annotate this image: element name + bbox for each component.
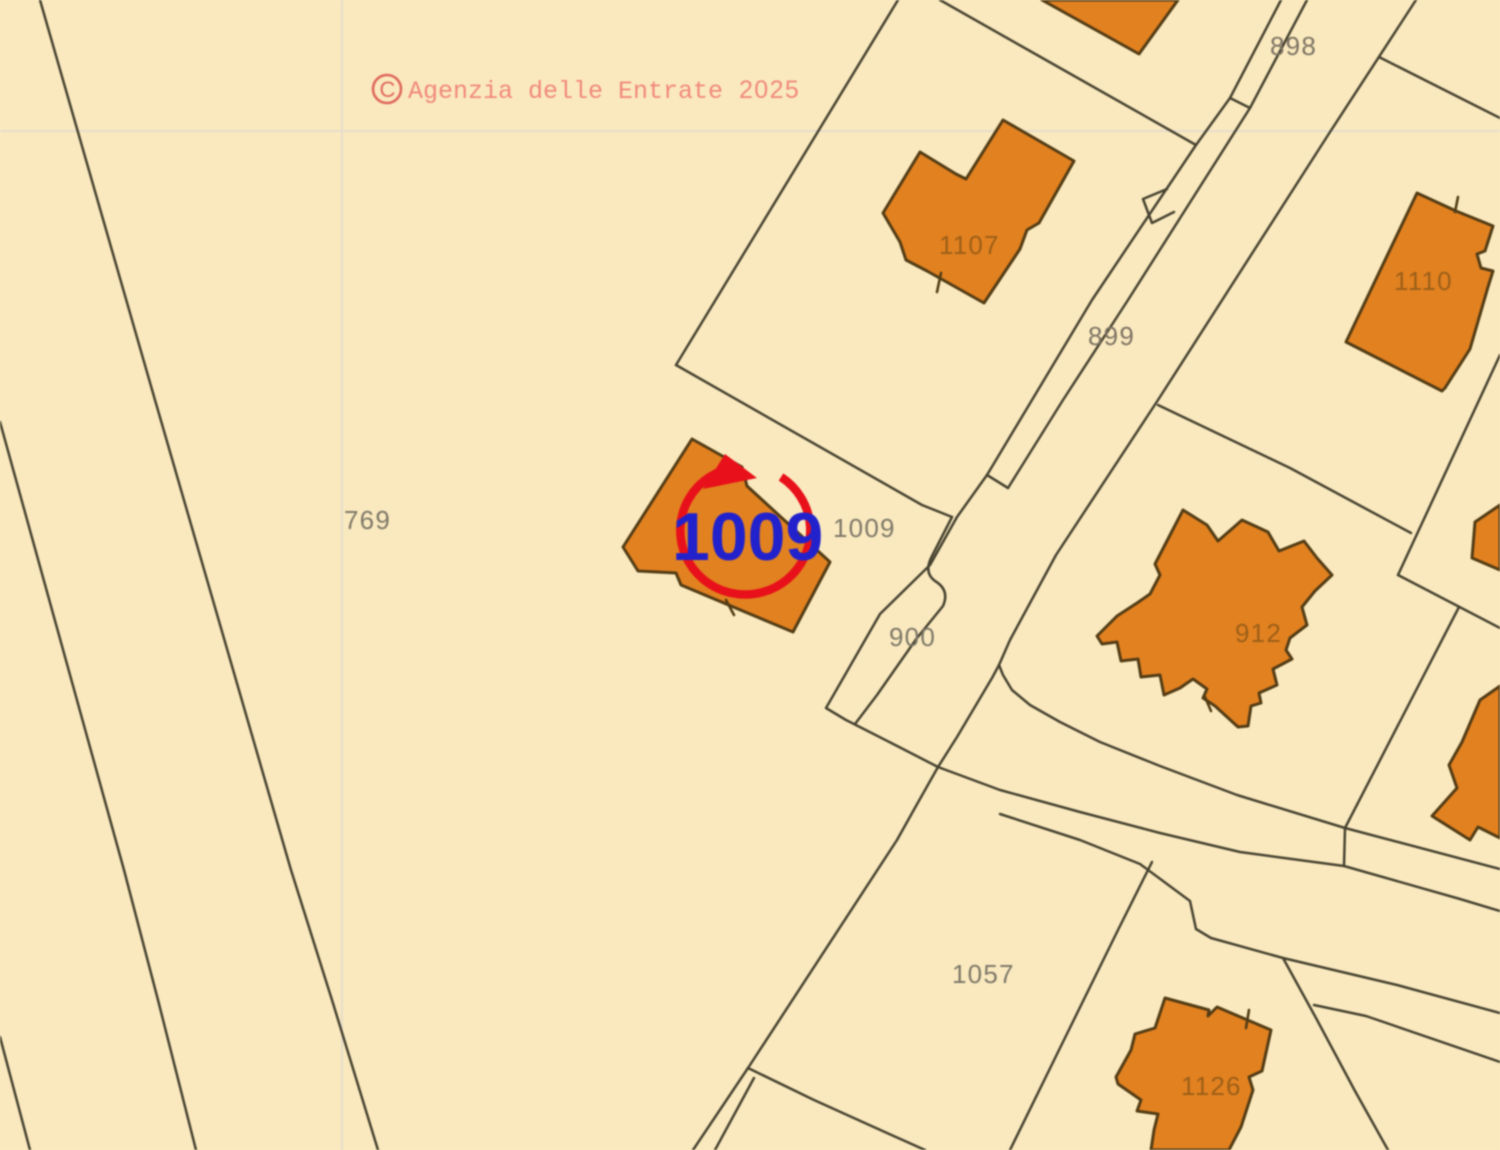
- svg-text:C: C: [380, 77, 396, 102]
- svg-text:769: 769: [344, 505, 391, 535]
- svg-text:1107: 1107: [939, 230, 1000, 260]
- svg-text:1110: 1110: [1394, 266, 1453, 296]
- svg-text:2025: 2025: [739, 76, 800, 104]
- svg-text:912: 912: [1235, 618, 1282, 648]
- svg-text:1009: 1009: [672, 499, 823, 575]
- svg-text:898: 898: [1270, 31, 1317, 61]
- svg-text:899: 899: [1088, 321, 1135, 351]
- svg-text:Agenzia delle Entrate: Agenzia delle Entrate: [408, 77, 723, 106]
- svg-text:900: 900: [889, 622, 936, 652]
- svg-text:1009: 1009: [833, 513, 896, 543]
- svg-text:1057: 1057: [952, 959, 1015, 989]
- svg-text:1126: 1126: [1181, 1071, 1242, 1101]
